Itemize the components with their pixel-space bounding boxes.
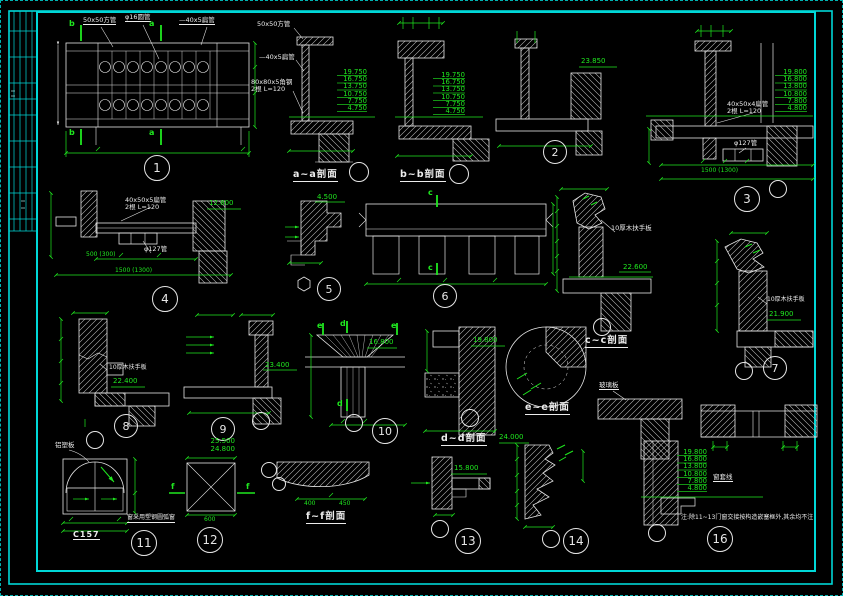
section-caption-aa: a~a剖面 <box>293 166 338 182</box>
detail-number: 4 <box>161 292 169 306</box>
section-marker-e: e <box>391 322 396 330</box>
detail-16-drawing <box>598 391 817 525</box>
label-round-tube: φ16圆管 <box>125 14 151 22</box>
elevation-value: 12.800 <box>209 200 234 208</box>
balloon-section-bb <box>449 164 469 184</box>
balloon-empty <box>461 409 479 427</box>
window-code: C157 <box>73 530 100 540</box>
section-cc-dims <box>555 189 653 291</box>
section-ee-dims <box>517 373 541 395</box>
elevation-value: 16.800 <box>369 339 394 347</box>
detail-number: 11 <box>136 536 151 550</box>
cad-detail-sheet: b 50x50方管 φ16圆管 a —40x5扁管 b a 1 50x50方管 … <box>0 0 843 596</box>
detail-1-dims <box>66 25 257 157</box>
elevation-value: 19.800 <box>473 337 498 345</box>
detail-1-drawing <box>58 25 249 145</box>
label-flat-tube: 40x50x5扁管 2根 L=120 <box>125 197 166 211</box>
label-square-tube: 50x50方管 <box>257 21 290 28</box>
label-square-tube: 50x50方管 <box>83 17 116 25</box>
detail-12-drawing <box>187 463 235 511</box>
label-alu-panel: 铝塑板 <box>55 442 75 449</box>
balloon-empty <box>542 530 560 548</box>
title-block <box>9 11 37 231</box>
section-cc-drawing <box>563 193 651 331</box>
section-ff-dims <box>297 493 365 499</box>
section-marker-d: d <box>337 400 343 408</box>
section-marker-f: f <box>171 483 174 491</box>
elevation-value: 23.400 <box>265 362 290 370</box>
balloon-detail-7: 7 <box>763 356 787 380</box>
detail-6-drawing <box>359 204 553 274</box>
elevation-value: 22.400 <box>113 378 138 386</box>
balloon-empty <box>735 362 753 380</box>
drawing-canvas <box>1 1 843 596</box>
section-caption-dd: d~d剖面 <box>441 430 487 446</box>
dimension-text: 500 (300) <box>86 252 116 259</box>
balloon-detail-11: 11 <box>131 530 157 556</box>
detail-number: 12 <box>202 533 217 547</box>
balloon-empty <box>272 477 286 491</box>
detail-12-dims <box>169 458 255 515</box>
section-marker-c: c <box>428 189 433 197</box>
elevation-stack: 19.750 16.750 13.750 10.750 7.750 4.750 <box>433 72 465 115</box>
balloon-empty <box>431 520 449 538</box>
balloon-detail-8: 8 <box>114 414 138 438</box>
section-ff-drawing <box>277 462 369 487</box>
label-wood-handrail: 10厚木扶手板 <box>109 365 147 372</box>
balloon-detail-10: 10 <box>372 418 398 444</box>
detail-6-dims <box>366 195 553 284</box>
balloon-detail-1: 1 <box>144 155 170 181</box>
label-wood-handrail: 10厚木扶手板 <box>767 297 805 304</box>
balloon-empty <box>345 414 363 432</box>
detail-number: 7 <box>772 362 779 375</box>
dimension-text: 600 <box>204 517 215 524</box>
balloon-detail-16: 16 <box>707 526 733 552</box>
detail-number: 1 <box>153 161 161 175</box>
section-marker-b: b <box>69 20 75 28</box>
detail-8-drawing <box>79 319 169 426</box>
section-ee-drawing <box>506 327 586 407</box>
section-marker-a: a <box>149 129 154 137</box>
label-glass-panel: 玻璃板 <box>599 382 619 390</box>
section-marker-f: f <box>246 483 249 491</box>
balloon-empty <box>261 462 277 478</box>
detail-11-drawing <box>63 450 127 514</box>
label-wood-handrail: 10厚木扶手板 <box>611 225 652 232</box>
detail-number: 13 <box>460 534 475 548</box>
detail-number: 3 <box>743 192 751 206</box>
elevation-value: 4.500 <box>317 194 337 202</box>
titleblock-mark <box>11 91 25 208</box>
label-pipe: φ127管 <box>734 140 757 147</box>
section-caption-ff: f~f剖面 <box>306 508 346 524</box>
balloon-empty <box>593 318 611 336</box>
balloon-detail-4: 4 <box>152 286 178 312</box>
section-caption-bb: b~b剖面 <box>400 166 446 182</box>
balloon-detail-3: 3 <box>734 186 760 212</box>
elevation-value: 21.900 <box>769 311 794 319</box>
detail-number: 16 <box>712 532 727 546</box>
elevation-stack: 19.800 16.800 13.800 10.800 7.800 4.800 <box>677 449 707 492</box>
detail-number: 2 <box>552 146 559 159</box>
balloon-empty <box>648 524 666 542</box>
label-angle-steel: 80x80x5角钢 2根 L=120 <box>251 79 292 93</box>
balloon-empty <box>769 180 787 198</box>
detail-number: 8 <box>123 420 130 433</box>
section-caption-ee: e~e剖面 <box>525 399 570 415</box>
window-note: 窗采用塑钢圆弧窗 <box>127 515 175 523</box>
elevation-value: 24.000 <box>499 434 524 442</box>
elevation-value: 22.600 <box>623 264 648 272</box>
balloon-detail-2: 2 <box>543 140 567 164</box>
balloon-section-aa <box>349 162 369 182</box>
balloon-empty <box>252 412 270 430</box>
balloon-detail-12: 12 <box>197 527 223 553</box>
label-window-casing: 窗套线 <box>713 474 733 482</box>
detail-10-drawing <box>305 335 405 417</box>
detail-number: 6 <box>442 290 449 303</box>
section-marker-d: d <box>340 320 346 328</box>
dimension-text: 400 <box>304 501 315 508</box>
detail-9-drawing <box>184 321 281 424</box>
balloon-detail-6: 6 <box>433 284 457 308</box>
balloon-detail-14: 14 <box>563 528 589 554</box>
detail-number: 14 <box>568 534 583 548</box>
label-flat-tube: —40x5扁管 <box>179 17 215 25</box>
elevation-stack: 19.750 16.750 13.750 10.750 7.750 4.750 <box>337 69 367 112</box>
detail-11-dims <box>63 459 137 531</box>
elevation-value: 15.800 <box>454 465 479 473</box>
detail-number: 5 <box>326 283 333 296</box>
dimension-text: 450 <box>339 501 350 508</box>
label-flat-tube: —40x5扁管 <box>259 54 295 61</box>
detail-14-drawing <box>525 445 555 519</box>
detail-number: 9 <box>220 423 227 436</box>
elevation-stack: 25.500 24.800 <box>195 438 235 453</box>
section-marker-b: b <box>69 129 75 137</box>
dimension-text: 1500 (1300) <box>701 168 738 175</box>
balloon-empty <box>86 431 104 449</box>
detail-number: 10 <box>378 425 392 438</box>
label-pipe: φ127管 <box>144 246 167 253</box>
balloon-detail-13: 13 <box>455 528 481 554</box>
section-marker-a: a <box>149 20 154 28</box>
elevation-stack: 19.800 16.800 13.800 10.800 7.800 4.800 <box>775 69 807 112</box>
elevation-value: 23.850 <box>581 58 606 66</box>
section-marker-c: c <box>428 264 433 272</box>
section-marker-e: e <box>317 322 322 330</box>
dimension-text: 1500 (1300) <box>115 268 152 275</box>
balloon-detail-5: 5 <box>317 277 341 301</box>
sheet-note: 注:除11~13门窗交接按构造嵌塞框外,其余均不注 <box>681 515 813 522</box>
